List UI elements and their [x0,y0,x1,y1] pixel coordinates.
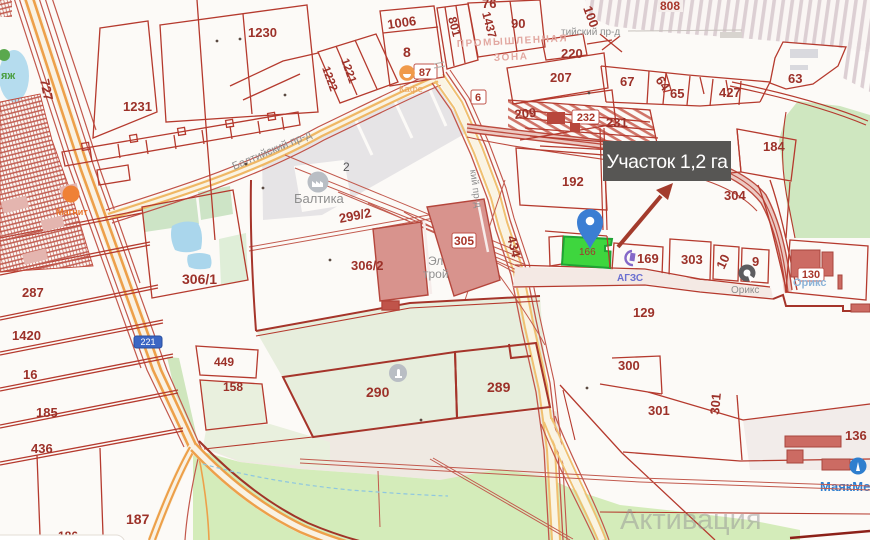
svg-text:184: 184 [763,139,785,154]
svg-text:289: 289 [487,379,511,395]
svg-text:158: 158 [223,380,243,394]
svg-text:65: 65 [670,86,684,101]
svg-text:Магнит: Магнит [56,207,88,217]
svg-text:427: 427 [719,85,741,100]
svg-text:221: 221 [140,337,155,347]
svg-text:185: 185 [36,405,58,420]
svg-text:187: 187 [126,511,150,527]
svg-text:300: 300 [618,358,640,373]
svg-text:436: 436 [31,441,53,456]
svg-text:136: 136 [845,428,867,443]
svg-text:ЗОНА: ЗОНА [494,51,529,64]
svg-text:90: 90 [511,16,525,31]
svg-text:2: 2 [343,160,350,174]
svg-text:АГЗС: АГЗС [617,273,643,284]
svg-text:87: 87 [419,67,431,79]
svg-text:129: 129 [633,305,655,320]
svg-text:Орикс: Орикс [731,285,759,296]
svg-text:67: 67 [620,74,634,89]
svg-text:Участок 1,2 га: Участок 1,2 га [606,151,728,173]
svg-text:306/1: 306/1 [182,271,217,287]
svg-text:трой: трой [423,267,449,281]
svg-text:166: 166 [579,247,596,258]
svg-text:220: 220 [561,46,583,61]
svg-text:449: 449 [214,355,234,369]
svg-text:16: 16 [23,367,37,382]
svg-text:Балтика: Балтика [294,191,345,206]
svg-text:Активация: Активация [620,504,762,536]
svg-text:209: 209 [514,105,537,122]
svg-text:808: 808 [660,0,680,13]
svg-text:МаякМет: МаякМет [820,479,870,494]
svg-text:192: 192 [562,174,584,189]
svg-text:231: 231 [606,115,628,130]
svg-text:301: 301 [707,392,724,415]
svg-text:306/2: 306/2 [351,258,384,273]
svg-text:207: 207 [550,70,572,85]
svg-text:9: 9 [752,254,759,269]
svg-text:1420: 1420 [12,328,41,343]
svg-text:Кафе: Кафе [399,84,423,95]
svg-text:Орикс: Орикс [793,277,827,289]
svg-text:яж: яж [1,70,15,82]
svg-text:8: 8 [403,44,411,60]
svg-text:287: 287 [22,285,44,300]
svg-text:303: 303 [681,252,703,267]
svg-text:301: 301 [648,403,670,418]
svg-text:290: 290 [366,384,390,400]
svg-text:304: 304 [724,188,746,203]
svg-text:169: 169 [637,251,659,266]
svg-text:Эл: Эл [428,254,443,268]
svg-text:тийский пр-д: тийский пр-д [561,27,620,38]
svg-text:1230: 1230 [248,25,277,40]
svg-text:232: 232 [577,112,595,124]
svg-text:76: 76 [482,0,496,11]
svg-text:6: 6 [475,92,481,104]
svg-text:63: 63 [788,71,802,86]
svg-text:305: 305 [454,234,474,248]
svg-text:1231: 1231 [123,99,152,114]
